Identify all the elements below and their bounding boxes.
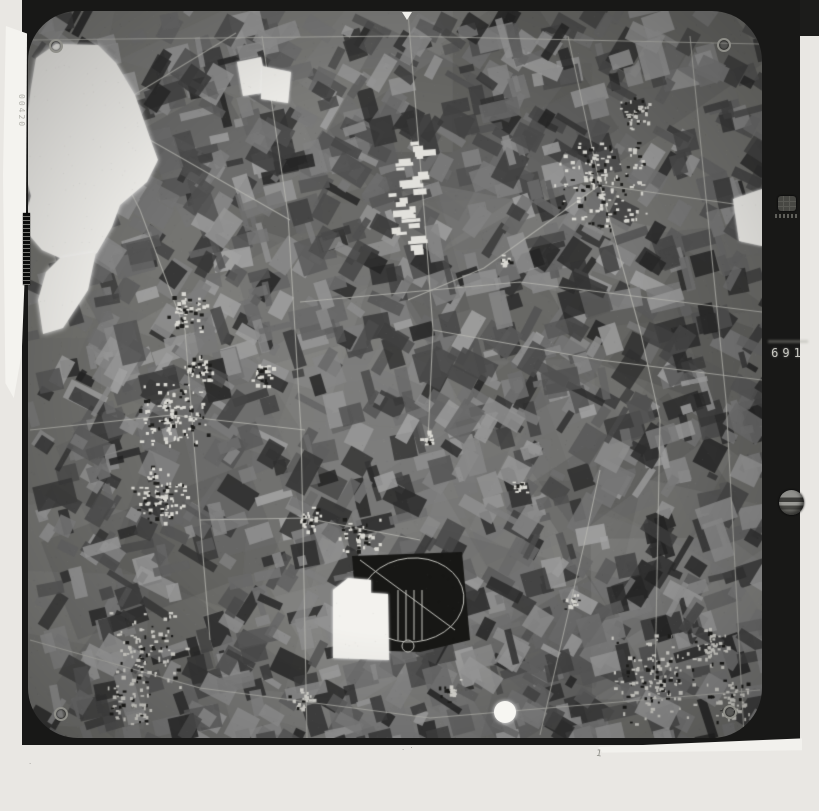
pencil-mark-right: 1 (595, 749, 602, 760)
emblem-grid-icon (778, 196, 796, 211)
fiducial-triangle-top-center-icon (402, 12, 412, 20)
fiducial-ring-bottom-right-icon (723, 705, 737, 719)
fiducial-ring-top-right-icon (717, 38, 731, 52)
fiducial-ring-top-left-icon (49, 39, 63, 53)
pencil-mark-left: . (29, 758, 31, 766)
emblem-caption-smudge (775, 214, 799, 218)
edge-data-stamp (23, 213, 30, 285)
edge-frame-number: 00420 (17, 94, 26, 128)
pencil-mark-center: . · (402, 744, 415, 752)
aerial-imagery (28, 11, 762, 738)
edge-emblem-sticker (773, 196, 801, 230)
film-canister-reflection-icon (779, 490, 804, 515)
index-label-smudge (768, 340, 808, 343)
film-rebate-extension (800, 0, 819, 36)
fiducial-dot-bottom-center-icon (494, 701, 516, 723)
aerial-photo-area (28, 11, 762, 738)
photo-index-number: 691 (764, 346, 812, 360)
fiducial-ring-bottom-left-icon (54, 707, 68, 721)
photo-index-block: 691 (764, 340, 812, 360)
scanned-aerial-photo-page: 00420 691 . . · 1 (0, 0, 819, 811)
